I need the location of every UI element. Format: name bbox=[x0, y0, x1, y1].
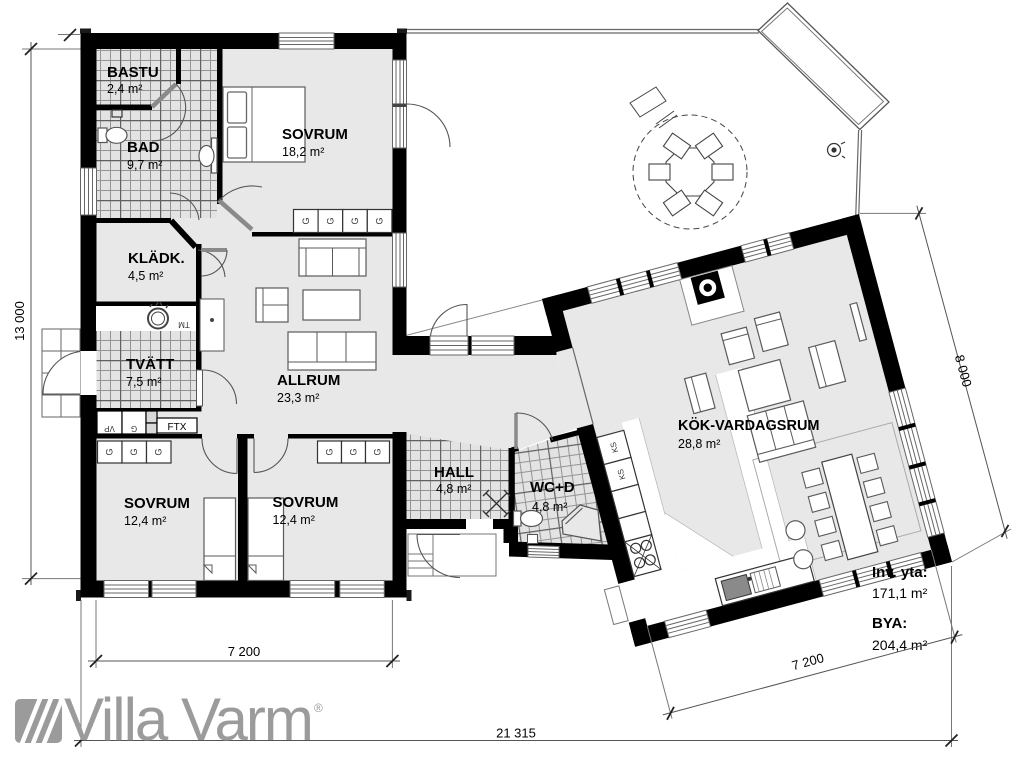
svg-text:KÖK-VARDAGSRUM: KÖK-VARDAGSRUM bbox=[678, 417, 820, 434]
svg-text:BAD: BAD bbox=[127, 139, 160, 156]
svg-text:28,8 m²: 28,8 m² bbox=[678, 437, 720, 451]
svg-text:18,2 m²: 18,2 m² bbox=[282, 145, 324, 159]
svg-text:9,7 m²: 9,7 m² bbox=[127, 158, 162, 172]
svg-text:171,1 m²: 171,1 m² bbox=[872, 585, 928, 601]
svg-text:FTX: FTX bbox=[168, 422, 187, 433]
svg-text:BYA:: BYA: bbox=[872, 615, 907, 632]
svg-text:BASTU: BASTU bbox=[107, 64, 159, 81]
svg-text:HALL: HALL bbox=[434, 464, 474, 481]
svg-text:WC+D: WC+D bbox=[530, 479, 575, 496]
svg-text:G: G bbox=[325, 217, 335, 224]
svg-text:ALLRUM: ALLRUM bbox=[277, 372, 340, 389]
svg-text:2,4 m²: 2,4 m² bbox=[107, 82, 142, 96]
svg-text:4,8 m²: 4,8 m² bbox=[436, 482, 471, 496]
svg-text:G: G bbox=[375, 217, 385, 224]
svg-text:G: G bbox=[349, 448, 359, 455]
svg-text:G: G bbox=[154, 448, 164, 455]
svg-text:Inv. yta:: Inv. yta: bbox=[872, 564, 928, 581]
svg-text:4,8 m²: 4,8 m² bbox=[532, 500, 567, 514]
svg-text:G: G bbox=[325, 448, 335, 455]
svg-text:SOVRUM: SOVRUM bbox=[124, 495, 190, 512]
svg-text:TM: TM bbox=[178, 320, 190, 329]
svg-text:7 200: 7 200 bbox=[228, 644, 261, 659]
svg-text:G: G bbox=[373, 448, 383, 455]
svg-text:SOVRUM: SOVRUM bbox=[282, 126, 348, 143]
svg-text:G: G bbox=[129, 448, 139, 455]
svg-text:21 315: 21 315 bbox=[496, 726, 536, 741]
svg-text:®: ® bbox=[314, 701, 323, 715]
svg-text:12,4 m²: 12,4 m² bbox=[124, 514, 166, 528]
svg-text:KLÄDK.: KLÄDK. bbox=[128, 250, 185, 267]
svg-text:23,3 m²: 23,3 m² bbox=[277, 391, 319, 405]
svg-text:G: G bbox=[350, 217, 360, 224]
svg-text:13 000: 13 000 bbox=[12, 301, 27, 341]
svg-text:204,4 m²: 204,4 m² bbox=[872, 637, 928, 653]
svg-text:G: G bbox=[131, 424, 137, 433]
svg-text:7,5 m²: 7,5 m² bbox=[126, 375, 161, 389]
svg-text:VP: VP bbox=[104, 424, 115, 433]
svg-text:4,5 m²: 4,5 m² bbox=[128, 269, 163, 283]
svg-text:G: G bbox=[301, 217, 311, 224]
svg-text:TVÄTT: TVÄTT bbox=[126, 356, 174, 373]
svg-text:12,4 m²: 12,4 m² bbox=[273, 513, 315, 527]
svg-text:G: G bbox=[105, 448, 115, 455]
svg-text:Villa Varm: Villa Varm bbox=[64, 686, 312, 753]
svg-text:SOVRUM: SOVRUM bbox=[273, 494, 339, 511]
